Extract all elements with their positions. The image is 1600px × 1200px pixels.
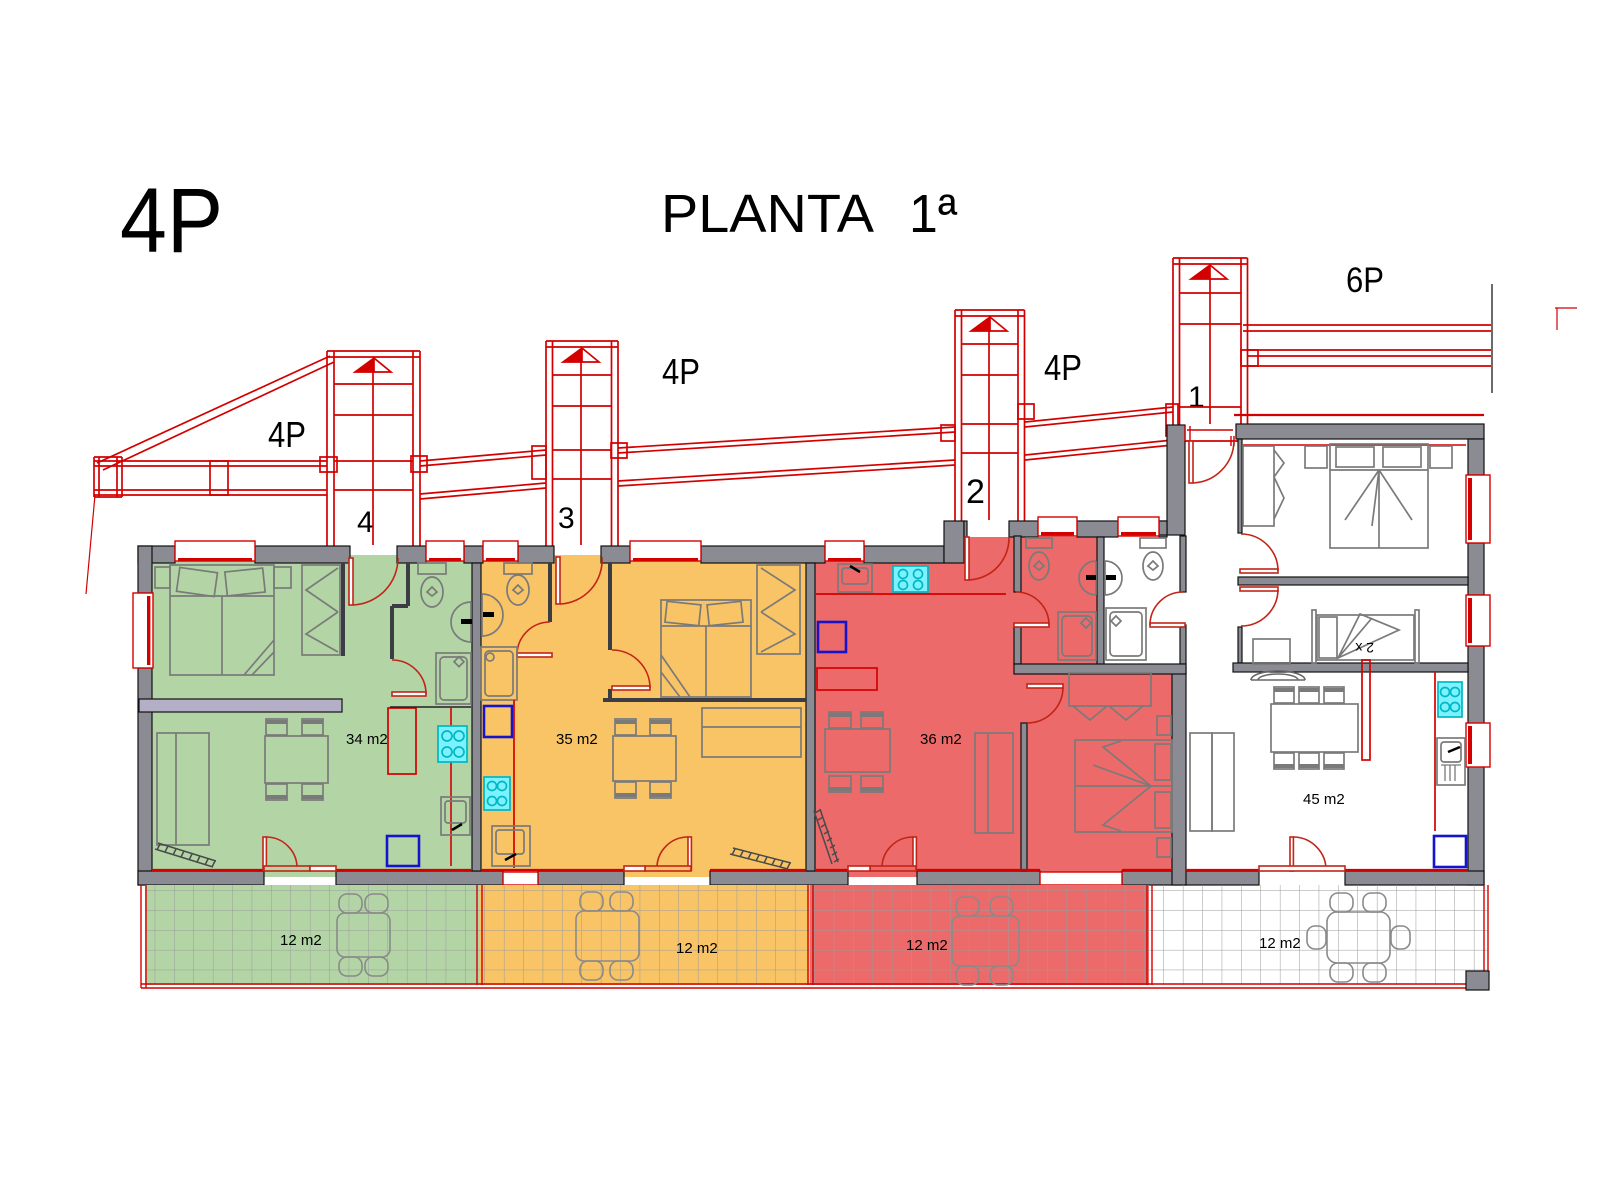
svg-text:12 m2: 12 m2 [280, 932, 322, 949]
svg-text:PLANTA: PLANTA [661, 184, 874, 244]
svg-text:4P: 4P [268, 414, 306, 455]
svg-text:45 m2: 45 m2 [1303, 791, 1345, 808]
svg-text:4P: 4P [1044, 347, 1082, 388]
svg-text:4P: 4P [662, 351, 700, 392]
svg-text:2 x: 2 x [1355, 640, 1374, 656]
svg-text:6P: 6P [1346, 261, 1384, 300]
svg-text:4: 4 [357, 506, 374, 539]
svg-text:3: 3 [558, 502, 575, 535]
svg-text:1ª: 1ª [909, 184, 958, 244]
svg-text:12 m2: 12 m2 [1259, 935, 1301, 952]
svg-text:12 m2: 12 m2 [676, 940, 718, 957]
svg-text:36 m2: 36 m2 [920, 731, 962, 748]
svg-text:4P: 4P [120, 170, 223, 272]
svg-text:35 m2: 35 m2 [556, 731, 598, 748]
svg-text:12 m2: 12 m2 [906, 937, 948, 954]
svg-text:34 m2: 34 m2 [346, 731, 388, 748]
svg-text:2: 2 [966, 473, 985, 511]
svg-text:1: 1 [1188, 381, 1205, 414]
